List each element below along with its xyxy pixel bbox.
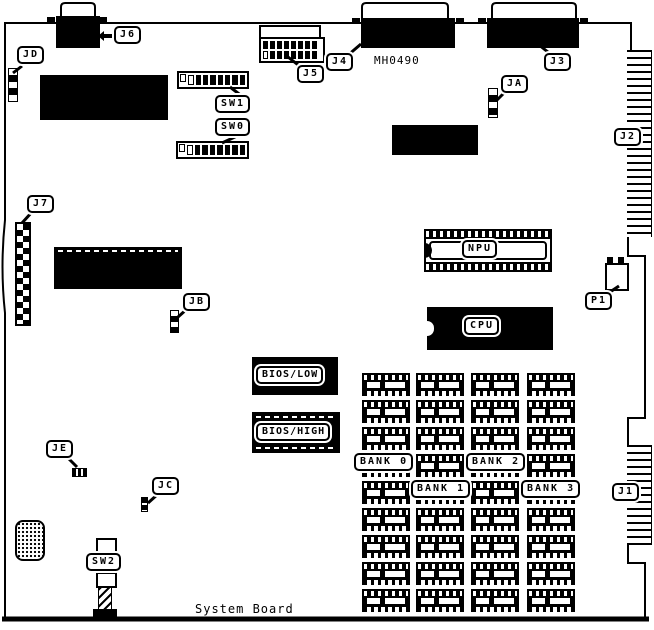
connector-j4-tab-left [352, 18, 360, 23]
label-cpu: CPU [464, 317, 499, 335]
label-sw1: SW1 [215, 95, 250, 113]
connector-j3-tab-left [478, 18, 486, 23]
label-sw0: SW0 [215, 118, 250, 136]
label-jd: JD [17, 46, 44, 64]
label-p1: P1 [585, 292, 612, 310]
sw1-pin1-marker [180, 74, 186, 82]
memory-chip [471, 427, 519, 450]
memory-chip [471, 508, 519, 531]
connector-j6-tab-right [100, 17, 107, 23]
label-j6: J6 [114, 26, 141, 44]
label-jc: JC [152, 477, 179, 495]
memory-chip [416, 589, 464, 612]
bios-high-dash-top [256, 416, 336, 418]
memory-chip [527, 562, 575, 585]
label-j1: J1 [612, 483, 639, 501]
memory-chip [527, 508, 575, 531]
memory-chip [471, 481, 519, 504]
jumper-jd [8, 68, 18, 102]
connector-j4-shell [362, 3, 448, 18]
cpu-notch [427, 321, 434, 336]
label-j5: J5 [297, 65, 324, 83]
label-ja: JA [501, 75, 528, 93]
memory-chip [416, 508, 464, 531]
label-bank0: BANK 0 [354, 453, 413, 471]
memory-chip [362, 427, 410, 450]
connector-j3-body [487, 18, 579, 48]
connector-j6-tab-left [47, 17, 55, 23]
j6-arrow [98, 31, 114, 41]
jumper-jb [170, 310, 179, 333]
memory-chip [416, 400, 464, 423]
memory-chip [362, 481, 410, 504]
connector-j3-shell [492, 3, 576, 18]
memory-chip [527, 427, 575, 450]
memory-chip [416, 535, 464, 558]
system-board-diagram: JD J6 J5 J4 J3 JA J2 J7 JB P1 JE JC SW1 … [0, 0, 654, 630]
sw2-body-bottom [96, 572, 117, 588]
memory-chip [362, 400, 410, 423]
memory-chip [471, 562, 519, 585]
memory-chip [471, 400, 519, 423]
chip-mid-top [392, 125, 478, 155]
connector-j3-tab-right [580, 18, 588, 23]
memory-chip [362, 373, 410, 396]
npu-pin-band-top [426, 231, 550, 237]
sw2-shaft [98, 587, 112, 611]
memory-chip [362, 508, 410, 531]
label-bank1: BANK 1 [411, 480, 470, 498]
connector-j6-shell [61, 3, 95, 17]
j5-pin-row-2 [263, 51, 321, 59]
memory-chip [362, 589, 410, 612]
j5-pin-row-1 [263, 41, 321, 49]
memory-chip [471, 373, 519, 396]
label-npu: NPU [462, 240, 497, 258]
memory-chip [527, 373, 575, 396]
connector-j6-body [56, 16, 100, 48]
label-bios-high: BIOS/HIGH [256, 423, 330, 441]
memory-chip [527, 400, 575, 423]
memory-chip [527, 454, 575, 477]
connector-j5-pins [259, 37, 325, 63]
chip-mid-left [54, 247, 182, 289]
memory-chip [471, 589, 519, 612]
label-j3: J3 [544, 53, 571, 71]
memory-chip [362, 562, 410, 585]
label-je: JE [46, 440, 73, 458]
sw0-pin1-marker [179, 144, 185, 152]
p1-connector [605, 263, 629, 291]
npu-pin-band-bottom [426, 264, 550, 270]
sw0-switches [187, 145, 245, 155]
memory-chip [416, 373, 464, 396]
dip-switch-sw0 [176, 141, 249, 159]
connector-j4-tab-right [456, 18, 464, 23]
label-bank3: BANK 3 [521, 480, 580, 498]
bios-high-dash-bottom [256, 447, 336, 449]
chip-top-left [40, 75, 168, 120]
memory-chip [527, 535, 575, 558]
p1-pin-left [607, 257, 613, 265]
pin-header-j7 [15, 222, 31, 326]
memory-chip [471, 535, 519, 558]
p1-pin-right [618, 257, 624, 265]
label-jb: JB [183, 293, 210, 311]
speaker [15, 520, 45, 561]
label-j7: J7 [27, 195, 54, 213]
connector-j4-body [361, 18, 455, 48]
board-title: System Board [195, 602, 294, 616]
jumper-je [72, 468, 87, 477]
jumper-jc [141, 497, 148, 512]
label-bios-low: BIOS/LOW [256, 366, 323, 384]
label-j2: J2 [614, 128, 641, 146]
memory-chip [527, 589, 575, 612]
sw2-base [93, 609, 117, 620]
label-sw2: SW2 [86, 553, 121, 571]
label-bank2: BANK 2 [466, 453, 525, 471]
sw1-switches [188, 75, 245, 85]
memory-chip [416, 454, 464, 477]
memory-chip [416, 562, 464, 585]
dip-switch-sw1 [177, 71, 249, 89]
memory-chip [416, 427, 464, 450]
label-j4: J4 [326, 53, 353, 71]
memory-chip [362, 535, 410, 558]
chip-socket-dash [58, 250, 178, 252]
jumper-ja [488, 88, 498, 118]
jc-tail [148, 494, 158, 503]
part-number-text: MH0490 [374, 54, 420, 67]
